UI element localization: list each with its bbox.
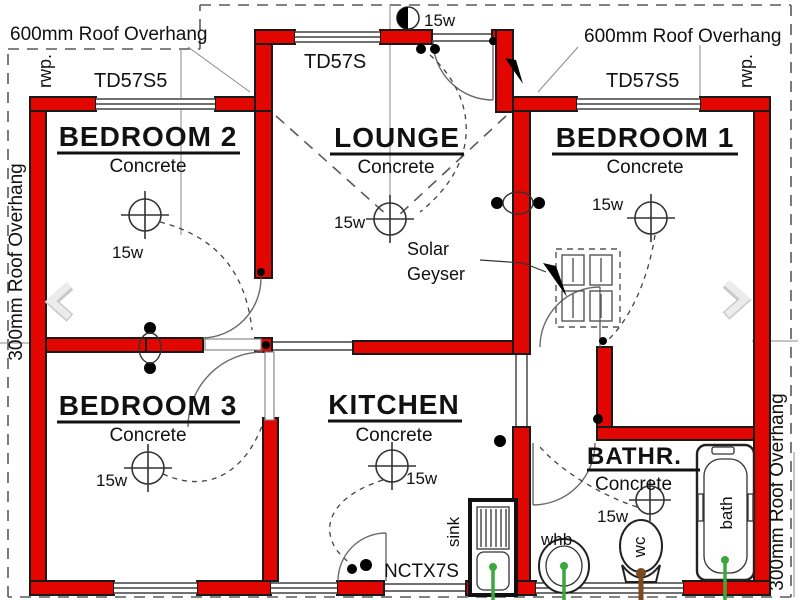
- rwp-label-left: rwp.: [35, 54, 55, 88]
- solar-geyser-label-2: Geyser: [407, 264, 465, 284]
- svg-text:Concrete: Concrete: [109, 425, 186, 446]
- room-bedroom1: BEDROOM 1 Concrete 15w: [552, 122, 738, 214]
- svg-text:15w: 15w: [96, 471, 128, 490]
- svg-text:KITCHEN: KITCHEN: [328, 389, 459, 420]
- next-arrow[interactable]: [714, 276, 754, 324]
- svg-text:BEDROOM 2: BEDROOM 2: [59, 121, 238, 152]
- roof-overhang-outline: [0, 4, 798, 597]
- window: [295, 31, 380, 43]
- svg-text:15w: 15w: [592, 195, 624, 214]
- exterior-light-wattage: 15w: [424, 11, 456, 30]
- svg-text:15w: 15w: [112, 243, 144, 262]
- room-lounge: LOUNGE Concrete 15w: [330, 122, 464, 232]
- floor-plan-viewer: 600mm Roof Overhang 600mm Roof Overhang …: [0, 0, 800, 600]
- svg-text:Concrete: Concrete: [595, 474, 672, 495]
- svg-text:BEDROOM 1: BEDROOM 1: [556, 122, 735, 153]
- exterior-light: [397, 7, 419, 29]
- window: [271, 582, 337, 594]
- truss-label-right: TD57S5: [606, 70, 679, 92]
- whb-label: whb: [540, 530, 572, 549]
- wall-left: [30, 97, 46, 595]
- svg-text:15w: 15w: [597, 507, 629, 526]
- overhang-label-top-left: 600mm Roof Overhang: [10, 24, 208, 45]
- solar-geyser-symbol: [480, 249, 620, 327]
- wc-label: wc: [630, 536, 649, 558]
- prev-arrow[interactable]: [42, 278, 82, 326]
- svg-text:Concrete: Concrete: [606, 157, 683, 178]
- room-bedroom2: BEDROOM 2 Concrete 15w: [57, 121, 240, 262]
- sink-label: sink: [444, 516, 463, 547]
- room-kitchen: KITCHEN Concrete 15w: [328, 389, 462, 488]
- svg-text:BATHR.: BATHR.: [587, 443, 682, 470]
- window: [96, 98, 215, 110]
- sink-fixture: [470, 500, 516, 600]
- overhang-label-left: 300mm Roof Overhang: [6, 163, 27, 361]
- bath-label: bath: [717, 496, 736, 529]
- lintel-label: NCTX7S: [384, 561, 459, 582]
- svg-text:15w: 15w: [406, 469, 438, 488]
- svg-text:15w: 15w: [334, 213, 366, 232]
- floor-plan-drawing: 600mm Roof Overhang 600mm Roof Overhang …: [0, 0, 800, 600]
- doors: [188, 37, 607, 581]
- annotations: 600mm Roof Overhang 600mm Roof Overhang …: [6, 11, 788, 591]
- truss-label-center: TD57S: [304, 51, 366, 73]
- window: [114, 582, 197, 594]
- light-bedroom3: [124, 444, 172, 492]
- svg-text:Concrete: Concrete: [355, 425, 432, 446]
- svg-text:Concrete: Concrete: [357, 157, 434, 178]
- window: [577, 98, 700, 110]
- svg-text:LOUNGE: LOUNGE: [334, 122, 460, 153]
- overhang-label-top-right: 600mm Roof Overhang: [584, 26, 782, 47]
- svg-text:BEDROOM 3: BEDROOM 3: [59, 390, 238, 421]
- svg-text:Concrete: Concrete: [109, 156, 186, 177]
- light-lounge: [366, 195, 414, 243]
- light-bedroom2: [121, 191, 169, 239]
- kitchen-back-door: [338, 533, 386, 581]
- overhang-label-right: 300mm Roof Overhang: [767, 393, 788, 591]
- truss-label-left: TD57S5: [94, 70, 167, 92]
- solar-geyser-label-1: Solar: [407, 239, 449, 259]
- light-bedroom1: [627, 194, 675, 242]
- room-bathroom: BATHR. Concrete 15w: [587, 443, 700, 526]
- rwp-label-right: rwp.: [736, 54, 756, 88]
